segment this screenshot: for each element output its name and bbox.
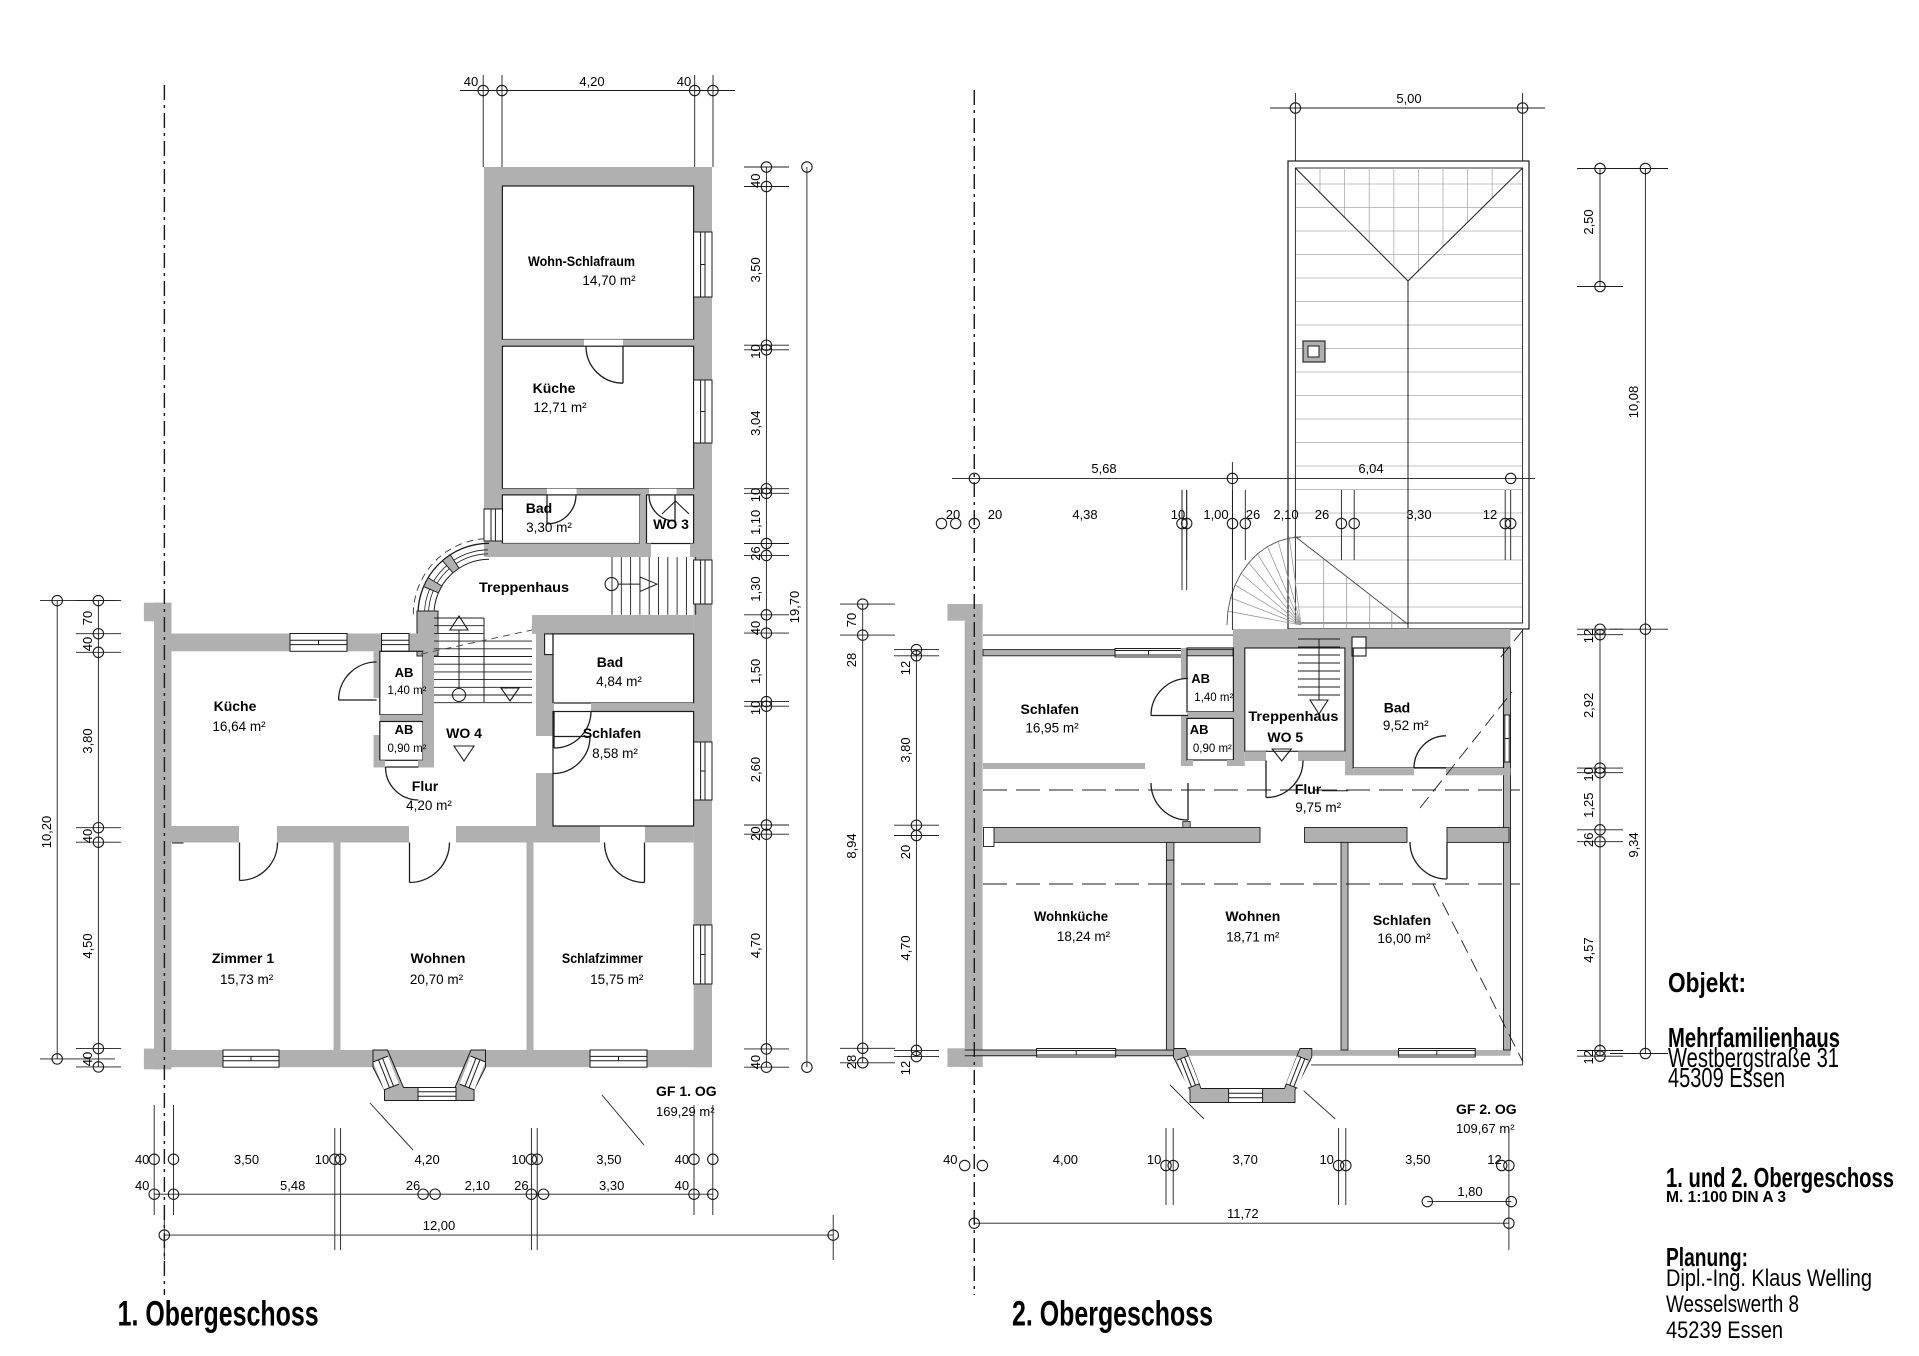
svg-text:28: 28 (844, 1055, 859, 1069)
svg-text:40: 40 (80, 1052, 95, 1066)
svg-text:12: 12 (1487, 1152, 1501, 1167)
svg-text:Küche: Küche (533, 380, 576, 396)
svg-text:45239 Essen: 45239 Essen (1666, 1317, 1783, 1344)
svg-text:12: 12 (898, 661, 913, 675)
svg-text:40: 40 (748, 621, 763, 635)
svg-text:15,73 m²: 15,73 m² (220, 972, 274, 987)
svg-text:18,71 m²: 18,71 m² (1226, 929, 1280, 944)
svg-text:Schlafen: Schlafen (1021, 701, 1079, 717)
svg-text:M. 1:100 DIN A 3: M. 1:100 DIN A 3 (1666, 1189, 1786, 1206)
svg-text:10: 10 (1147, 1152, 1161, 1167)
svg-text:10: 10 (748, 488, 763, 502)
svg-text:Schlafzimmer: Schlafzimmer (562, 950, 643, 966)
svg-text:4,20: 4,20 (414, 1152, 439, 1167)
svg-text:8,58 m²: 8,58 m² (592, 746, 638, 761)
svg-text:Küche: Küche (214, 698, 257, 714)
svg-text:40: 40 (464, 74, 478, 89)
svg-text:Wohnen: Wohnen (1225, 908, 1280, 924)
svg-text:109,67 m²: 109,67 m² (1456, 1121, 1515, 1136)
svg-text:16,64 m²: 16,64 m² (212, 719, 266, 734)
svg-text:3,50: 3,50 (234, 1152, 259, 1167)
svg-text:0,90 m²: 0,90 m² (1193, 743, 1232, 755)
svg-text:3,30: 3,30 (599, 1178, 624, 1193)
svg-text:16,00 m²: 16,00 m² (1377, 931, 1431, 946)
svg-text:40: 40 (748, 174, 763, 188)
svg-text:11,72: 11,72 (1227, 1206, 1259, 1221)
svg-text:3,30: 3,30 (1406, 507, 1431, 522)
svg-text:70: 70 (80, 611, 95, 625)
svg-text:19,70: 19,70 (787, 591, 802, 624)
svg-text:GF 2. OG: GF 2. OG (1456, 1101, 1517, 1117)
svg-text:1. Obergeschoss: 1. Obergeschoss (118, 1295, 319, 1334)
svg-text:20: 20 (898, 845, 913, 859)
svg-text:AB: AB (395, 722, 414, 737)
svg-text:4,70: 4,70 (898, 935, 913, 960)
svg-text:8,94: 8,94 (844, 833, 859, 858)
svg-text:WO 4: WO 4 (446, 725, 482, 741)
svg-text:10: 10 (1319, 1152, 1333, 1167)
svg-text:AB: AB (395, 665, 414, 680)
svg-text:1,40 m²: 1,40 m² (1194, 692, 1233, 704)
svg-text:Flur: Flur (412, 778, 439, 794)
svg-text:1,40 m²: 1,40 m² (388, 685, 427, 697)
svg-text:AB: AB (1191, 671, 1210, 686)
svg-text:40: 40 (135, 1152, 149, 1167)
svg-text:12: 12 (1483, 507, 1497, 522)
svg-text:0,90 m²: 0,90 m² (388, 743, 427, 755)
svg-text:1,25: 1,25 (1581, 793, 1596, 818)
svg-text:Bad: Bad (526, 500, 552, 516)
svg-text:15,75 m²: 15,75 m² (590, 972, 644, 987)
svg-text:2,10: 2,10 (1273, 507, 1298, 522)
svg-text:10,08: 10,08 (1626, 386, 1641, 419)
svg-text:12: 12 (1581, 1050, 1596, 1064)
svg-text:Objekt:: Objekt: (1668, 967, 1746, 998)
svg-text:WO 5: WO 5 (1267, 729, 1303, 745)
svg-text:Wohnen: Wohnen (411, 950, 466, 966)
svg-text:20: 20 (748, 826, 763, 840)
svg-text:20: 20 (988, 507, 1002, 522)
svg-text:9,75 m²: 9,75 m² (1295, 800, 1341, 815)
svg-text:169,29 m²: 169,29 m² (656, 1104, 715, 1119)
svg-text:40: 40 (943, 1152, 957, 1167)
svg-text:1,30: 1,30 (748, 576, 763, 601)
svg-text:10: 10 (748, 701, 763, 715)
svg-text:3,04: 3,04 (748, 411, 763, 436)
svg-text:40: 40 (675, 1152, 689, 1167)
svg-text:12,00: 12,00 (423, 1218, 456, 1233)
svg-text:2,10: 2,10 (465, 1178, 490, 1193)
svg-text:6,04: 6,04 (1358, 461, 1383, 476)
svg-text:Wohn-Schlafraum: Wohn-Schlafraum (528, 253, 635, 269)
svg-text:10: 10 (1581, 767, 1596, 781)
svg-text:4,84 m²: 4,84 m² (596, 674, 642, 689)
svg-text:10,20: 10,20 (39, 816, 54, 849)
svg-text:45309 Essen: 45309 Essen (1668, 1062, 1785, 1093)
svg-text:2,60: 2,60 (748, 757, 763, 782)
svg-text:3,50: 3,50 (1405, 1152, 1430, 1167)
svg-text:20,70 m²: 20,70 m² (410, 972, 464, 987)
svg-text:Schlafen: Schlafen (583, 725, 641, 741)
svg-text:WO 3: WO 3 (653, 516, 689, 532)
svg-text:Wohnküche: Wohnküche (1034, 908, 1108, 924)
svg-text:40: 40 (135, 1178, 149, 1193)
svg-text:3,30 m²: 3,30 m² (526, 520, 572, 535)
svg-text:12: 12 (1581, 629, 1596, 643)
svg-text:2. Obergeschoss: 2. Obergeschoss (1012, 1295, 1213, 1334)
svg-text:4,20 m²: 4,20 m² (406, 798, 452, 813)
svg-text:GF 1. OG: GF 1. OG (656, 1083, 717, 1099)
svg-text:4,20: 4,20 (579, 74, 604, 89)
svg-text:40: 40 (80, 637, 95, 651)
svg-text:4,50: 4,50 (80, 933, 95, 958)
svg-text:4,00: 4,00 (1053, 1152, 1078, 1167)
svg-text:26: 26 (514, 1178, 528, 1193)
svg-text:26: 26 (406, 1178, 420, 1193)
svg-text:10: 10 (315, 1152, 329, 1167)
svg-text:AB: AB (1190, 722, 1209, 737)
svg-text:Dipl.-Ing. Klaus Welling: Dipl.-Ing. Klaus Welling (1666, 1265, 1872, 1292)
svg-text:Treppenhaus: Treppenhaus (479, 579, 569, 595)
svg-text:20: 20 (946, 507, 960, 522)
svg-text:40: 40 (748, 1055, 763, 1069)
svg-text:26: 26 (1315, 507, 1329, 522)
svg-text:Schlafen: Schlafen (1373, 912, 1431, 928)
svg-text:12: 12 (898, 1061, 913, 1075)
svg-text:26: 26 (1246, 507, 1260, 522)
svg-text:3,70: 3,70 (1233, 1152, 1258, 1167)
svg-text:5,68: 5,68 (1091, 461, 1116, 476)
svg-text:2,92: 2,92 (1581, 693, 1596, 718)
svg-text:5,00: 5,00 (1396, 91, 1421, 106)
svg-text:Zimmer 1: Zimmer 1 (212, 950, 274, 966)
svg-text:26: 26 (1581, 833, 1596, 847)
svg-text:1,00: 1,00 (1203, 507, 1228, 522)
svg-text:4,38: 4,38 (1072, 507, 1097, 522)
svg-text:2,50: 2,50 (1581, 209, 1596, 234)
svg-text:70: 70 (844, 613, 859, 627)
svg-text:3,80: 3,80 (80, 728, 95, 753)
svg-text:40: 40 (80, 829, 95, 843)
svg-text:14,70 m²: 14,70 m² (582, 273, 636, 288)
svg-text:10: 10 (748, 344, 763, 358)
svg-text:3,50: 3,50 (596, 1152, 621, 1167)
svg-text:Bad: Bad (1384, 700, 1410, 716)
svg-text:9,52 m²: 9,52 m² (1383, 718, 1429, 733)
svg-text:9,34: 9,34 (1626, 832, 1641, 857)
svg-text:4,57: 4,57 (1581, 937, 1596, 962)
svg-text:10: 10 (511, 1152, 525, 1167)
svg-text:12,71 m²: 12,71 m² (533, 400, 587, 415)
svg-text:Bad: Bad (597, 654, 623, 670)
svg-text:40: 40 (677, 74, 691, 89)
svg-text:1,80: 1,80 (1457, 1184, 1482, 1199)
svg-text:3,50: 3,50 (748, 257, 763, 282)
svg-text:Flur: Flur (1295, 781, 1322, 797)
svg-text:3,80: 3,80 (898, 737, 913, 762)
svg-text:28: 28 (844, 653, 859, 667)
svg-text:40: 40 (675, 1178, 689, 1193)
svg-text:1,50: 1,50 (748, 659, 763, 684)
svg-text:16,95 m²: 16,95 m² (1025, 721, 1079, 736)
svg-text:26: 26 (748, 546, 763, 560)
svg-text:Wesselswerth 8: Wesselswerth 8 (1666, 1291, 1799, 1318)
svg-text:1,10: 1,10 (748, 510, 763, 535)
svg-text:18,24 m²: 18,24 m² (1057, 929, 1111, 944)
svg-text:Treppenhaus: Treppenhaus (1248, 708, 1338, 724)
svg-text:4,70: 4,70 (748, 933, 763, 958)
svg-text:5,48: 5,48 (280, 1178, 305, 1193)
